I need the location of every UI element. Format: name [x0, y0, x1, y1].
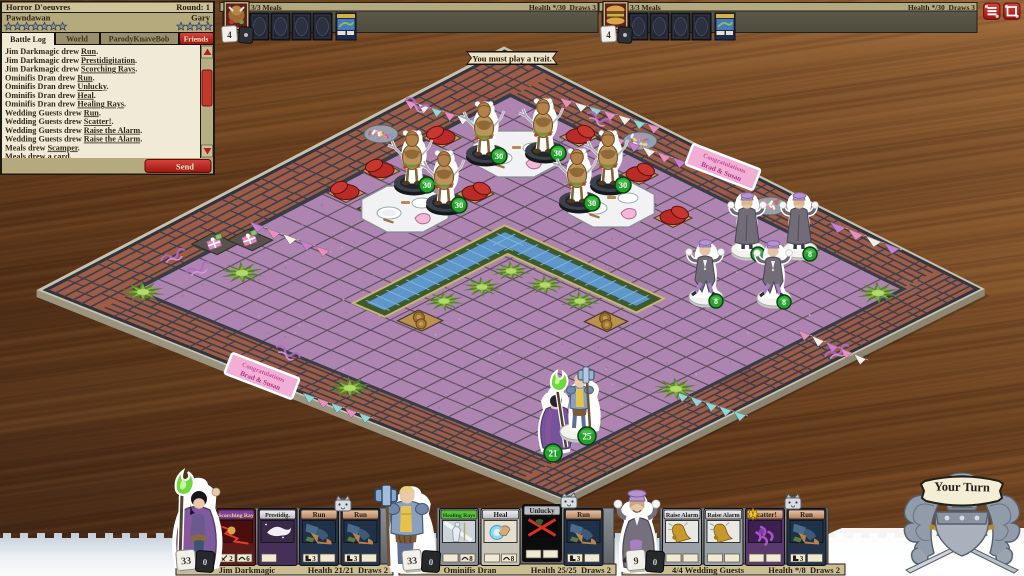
- svg-text:World: World: [66, 35, 88, 44]
- svg-text:8: 8: [714, 297, 718, 306]
- svg-text:8: 8: [469, 555, 473, 563]
- svg-text:Health 21/21 Draws 2: Health 21/21 Draws 2: [308, 565, 388, 575]
- svg-text:Pawndawan: Pawndawan: [6, 13, 51, 23]
- svg-text:4/4 Wedding Guests: 4/4 Wedding Guests: [672, 565, 745, 575]
- svg-text:Unlucky: Unlucky: [529, 507, 555, 515]
- svg-text:Jim Darkmagic drew Prestidigit: Jim Darkmagic drew Prestidigitation.: [5, 56, 137, 65]
- svg-text:Raise Alarm: Raise Alarm: [666, 513, 698, 519]
- svg-text:Heal: Heal: [494, 511, 508, 519]
- svg-text:4: 4: [606, 30, 611, 40]
- svg-text:30: 30: [495, 151, 504, 161]
- svg-text:6: 6: [246, 555, 250, 563]
- svg-text:Scorching Ray: Scorching Ray: [218, 513, 254, 519]
- svg-text:Ominifis Dran drew Heal.: Ominifis Dran drew Heal.: [5, 91, 96, 100]
- svg-text:Battle Log: Battle Log: [10, 35, 46, 44]
- svg-text:ParodyKnaveBob: ParodyKnaveBob: [109, 35, 170, 44]
- svg-text:Wedding Guests drew Scatter!.: Wedding Guests drew Scatter!.: [5, 117, 114, 126]
- svg-text:Health */30 Draws 3: Health */30 Draws 3: [908, 3, 975, 12]
- svg-text:8: 8: [511, 555, 515, 563]
- svg-text:3: 3: [800, 555, 804, 563]
- svg-text:Ominifis Dran drew Healing Ray: Ominifis Dran drew Healing Rays.: [5, 100, 126, 109]
- svg-text:Run: Run: [800, 511, 813, 519]
- svg-text:Gary: Gary: [191, 13, 211, 23]
- svg-text:Ominifis Dran drew Run.: Ominifis Dran drew Run.: [5, 73, 94, 82]
- svg-text:Wedding Guests drew Run.: Wedding Guests drew Run.: [5, 108, 101, 117]
- svg-text:Healing Rays: Healing Rays: [443, 513, 476, 519]
- svg-text:3: 3: [312, 555, 316, 563]
- svg-text:30: 30: [588, 198, 597, 208]
- svg-text:8: 8: [808, 250, 812, 259]
- svg-text:Run: Run: [354, 511, 367, 519]
- svg-text:30: 30: [455, 200, 464, 210]
- svg-text:Wedding Guests drew Raise the: Wedding Guests drew Raise the Alarm.: [5, 135, 142, 144]
- svg-text:21: 21: [549, 449, 559, 459]
- svg-text:Jim Darkmagic drew Scorching R: Jim Darkmagic drew Scorching Rays.: [5, 65, 137, 74]
- svg-text:Run: Run: [577, 511, 590, 519]
- svg-text:Friends: Friends: [184, 35, 209, 44]
- svg-text:3/3 Meals: 3/3 Meals: [251, 3, 282, 12]
- svg-text:Ominifis Dran: Ominifis Dran: [444, 565, 497, 575]
- svg-text:9: 9: [633, 556, 639, 567]
- svg-text:33: 33: [181, 556, 192, 568]
- svg-text:Jim Darkmagic: Jim Darkmagic: [219, 565, 276, 575]
- svg-text:Horror D'oeuvres: Horror D'oeuvres: [6, 2, 71, 12]
- svg-text:30: 30: [554, 148, 563, 158]
- svg-text:Prestidig.: Prestidig.: [265, 513, 290, 519]
- svg-text:3/3 Meals: 3/3 Meals: [630, 3, 661, 12]
- svg-text:8: 8: [782, 298, 786, 307]
- svg-text:Jim Darkmagic drew Run.: Jim Darkmagic drew Run.: [5, 47, 98, 56]
- svg-text:Raise Alarm: Raise Alarm: [707, 513, 739, 519]
- svg-text:Health 25/25 Draws 2: Health 25/25 Draws 2: [531, 565, 611, 575]
- svg-text:30: 30: [423, 180, 432, 190]
- svg-text:!: !: [752, 510, 755, 519]
- svg-text:4: 4: [227, 30, 232, 40]
- svg-text:30: 30: [619, 180, 628, 190]
- svg-text:Round: 1: Round: 1: [176, 2, 210, 12]
- svg-text:Wedding Guests drew Raise the: Wedding Guests drew Raise the Alarm.: [5, 126, 142, 135]
- svg-text:3: 3: [354, 555, 358, 563]
- svg-text:Meals drew Scamper.: Meals drew Scamper.: [5, 143, 80, 152]
- svg-text:3: 3: [577, 555, 581, 563]
- svg-text:Health */8 Draws 2: Health */8 Draws 2: [768, 565, 840, 575]
- svg-text:Your Turn: Your Turn: [934, 480, 990, 495]
- svg-text:Send: Send: [176, 162, 194, 172]
- svg-text:Ominifis Dran drew Unlucky.: Ominifis Dran drew Unlucky.: [5, 82, 109, 91]
- svg-text:33: 33: [407, 556, 418, 568]
- svg-text:25: 25: [583, 432, 593, 442]
- svg-text:You must play a trait.: You must play a trait.: [472, 53, 552, 63]
- svg-text:Run: Run: [313, 511, 326, 519]
- svg-text:2: 2: [229, 555, 233, 563]
- svg-text:Health */30 Draws 3: Health */30 Draws 3: [529, 3, 596, 12]
